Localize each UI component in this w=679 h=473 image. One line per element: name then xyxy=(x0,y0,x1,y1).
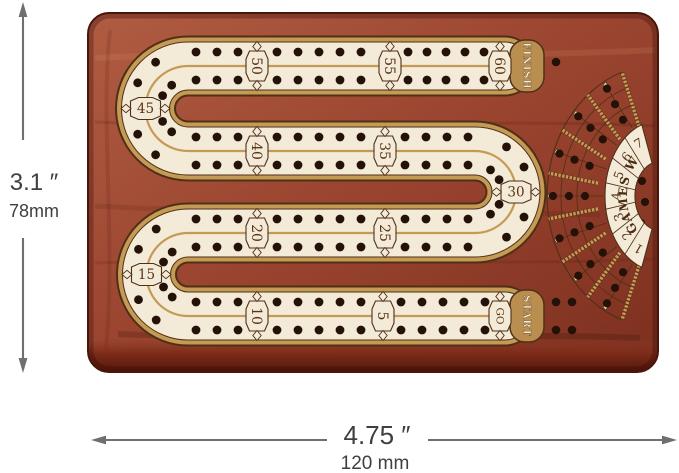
width-mm-label: 120 mm xyxy=(341,453,410,473)
arrow-left-icon xyxy=(91,436,106,445)
badge-number: 5 xyxy=(374,312,390,321)
peg-hole xyxy=(159,283,168,292)
peg-hole xyxy=(273,298,282,307)
peg-hole xyxy=(443,243,452,252)
peg-hole xyxy=(480,48,489,57)
peg-hole xyxy=(336,215,345,224)
peg-hole xyxy=(151,58,160,67)
badge-number: 20 xyxy=(248,224,264,242)
peg-hole xyxy=(167,81,176,90)
peg-hole xyxy=(480,76,489,85)
peg-hole xyxy=(168,293,177,302)
peg-hole xyxy=(159,258,168,267)
peg-hole xyxy=(213,243,222,252)
peg-hole xyxy=(234,161,243,170)
peg-hole xyxy=(418,298,427,307)
peg-hole xyxy=(404,48,413,57)
board: GO51015202530354045505560 1234567GAMES W… xyxy=(0,0,658,372)
peg-hole xyxy=(152,225,161,234)
peg-hole xyxy=(234,133,243,142)
badge-number: 60 xyxy=(491,57,507,75)
peg-hole xyxy=(315,48,324,57)
height-mm-label: 78mm xyxy=(9,201,59,221)
height-inches-label: 3.1 ″ xyxy=(10,169,59,196)
peg-hole xyxy=(315,243,324,252)
peg-hole xyxy=(439,326,448,335)
peg-hole xyxy=(273,326,282,335)
peg-hole xyxy=(574,272,582,280)
badge-number: 30 xyxy=(507,185,524,201)
peg-hole xyxy=(273,215,282,224)
peg-hole xyxy=(481,326,490,335)
peg-hole xyxy=(234,326,243,335)
peg-hole xyxy=(273,243,282,252)
peg-hole xyxy=(213,76,222,85)
peg-hole xyxy=(443,215,452,224)
badge-number: 10 xyxy=(248,307,264,325)
peg-hole xyxy=(552,298,561,307)
peg-hole xyxy=(552,326,561,335)
peg-hole xyxy=(336,76,345,85)
peg-hole xyxy=(294,76,303,85)
peg-hole xyxy=(461,48,470,57)
peg-hole xyxy=(464,243,473,252)
finish-label: FINISH xyxy=(521,42,532,89)
peg-hole xyxy=(234,215,243,224)
peg-hole xyxy=(134,245,143,254)
peg-hole xyxy=(401,215,410,224)
peg-hole xyxy=(423,76,432,85)
peg-hole xyxy=(158,117,167,126)
width-inches-label: 4.75 ″ xyxy=(343,420,410,450)
peg-hole xyxy=(460,298,469,307)
peg-hole xyxy=(234,243,243,252)
peg-hole xyxy=(555,234,563,242)
peg-hole xyxy=(401,243,410,252)
peg-hole xyxy=(611,100,619,108)
peg-hole xyxy=(397,326,406,335)
peg-hole xyxy=(357,76,366,85)
peg-hole xyxy=(151,150,160,159)
peg-hole xyxy=(502,143,511,152)
peg-hole xyxy=(133,130,142,139)
peg-hole xyxy=(294,326,303,335)
peg-hole xyxy=(460,326,469,335)
peg-hole xyxy=(357,161,366,170)
arrow-up-icon xyxy=(19,2,28,17)
badge-number: 45 xyxy=(137,101,154,117)
peg-hole xyxy=(234,76,243,85)
peg-hole xyxy=(357,326,366,335)
peg-hole xyxy=(294,133,303,142)
peg-hole xyxy=(422,133,431,142)
peg-hole xyxy=(192,76,201,85)
peg-hole xyxy=(443,133,452,142)
peg-hole xyxy=(565,192,573,200)
peg-hole xyxy=(422,215,431,224)
peg-hole xyxy=(552,58,561,67)
peg-hole xyxy=(336,298,345,307)
peg-hole xyxy=(315,76,324,85)
peg-hole xyxy=(357,48,366,57)
peg-hole xyxy=(213,298,222,307)
peg-hole xyxy=(397,298,406,307)
peg-hole xyxy=(192,48,201,57)
peg-hole xyxy=(315,161,324,170)
peg-hole xyxy=(234,48,243,57)
peg-hole xyxy=(336,133,345,142)
peg-hole xyxy=(603,299,611,307)
peg-hole xyxy=(401,161,410,170)
peg-hole xyxy=(586,124,594,132)
peg-hole xyxy=(464,161,473,170)
peg-hole xyxy=(439,298,448,307)
peg-hole xyxy=(423,48,432,57)
badge-number: 40 xyxy=(248,142,264,160)
peg-hole xyxy=(495,200,504,209)
peg-hole xyxy=(418,326,427,335)
peg-hole xyxy=(481,298,490,307)
peg-hole xyxy=(294,298,303,307)
peg-hole xyxy=(574,112,582,120)
peg-hole xyxy=(158,91,167,100)
peg-hole xyxy=(464,133,473,142)
badge-number: 15 xyxy=(138,267,155,283)
peg-hole xyxy=(192,298,201,307)
badge-number: GO xyxy=(493,308,505,325)
peg-hole xyxy=(641,198,649,206)
peg-hole xyxy=(570,228,578,236)
peg-hole xyxy=(586,222,594,230)
badge-number: 55 xyxy=(381,57,397,75)
peg-hole xyxy=(586,260,594,268)
peg-hole xyxy=(357,298,366,307)
peg-hole xyxy=(192,243,201,252)
peg-hole xyxy=(192,215,201,224)
peg-hole xyxy=(568,298,577,307)
peg-hole xyxy=(294,215,303,224)
peg-hole xyxy=(422,161,431,170)
peg-hole xyxy=(134,295,143,304)
peg-hole xyxy=(273,161,282,170)
peg-hole xyxy=(603,85,611,93)
peg-hole xyxy=(495,175,504,184)
peg-hole xyxy=(357,243,366,252)
peg-hole xyxy=(570,156,578,164)
peg-hole xyxy=(486,166,495,175)
peg-hole xyxy=(442,76,451,85)
peg-hole xyxy=(404,76,413,85)
product-image[interactable]: GO51015202530354045505560 1234567GAMES W… xyxy=(0,0,679,473)
peg-hole xyxy=(152,316,161,325)
height-dimension: 3.1 ″ 78mm xyxy=(9,2,59,373)
peg-hole xyxy=(315,215,324,224)
peg-hole xyxy=(357,215,366,224)
peg-hole xyxy=(520,213,529,222)
peg-hole xyxy=(213,215,222,224)
peg-hole xyxy=(315,133,324,142)
peg-hole xyxy=(401,133,410,142)
peg-hole xyxy=(213,133,222,142)
peg-hole xyxy=(294,161,303,170)
peg-hole xyxy=(192,133,201,142)
peg-hole xyxy=(133,78,142,87)
peg-hole xyxy=(549,192,557,200)
peg-hole xyxy=(336,161,345,170)
peg-hole xyxy=(294,48,303,57)
peg-hole xyxy=(443,161,452,170)
peg-hole xyxy=(273,133,282,142)
peg-hole xyxy=(336,48,345,57)
peg-hole xyxy=(611,284,619,292)
peg-hole xyxy=(192,326,201,335)
peg-hole xyxy=(213,161,222,170)
badge-number: 35 xyxy=(376,142,392,160)
peg-hole xyxy=(486,210,495,219)
peg-hole xyxy=(464,215,473,224)
width-dimension: 4.75 ″ 120 mm xyxy=(91,420,677,473)
peg-hole xyxy=(294,243,303,252)
peg-hole xyxy=(315,326,324,335)
peg-hole xyxy=(520,163,529,172)
peg-hole xyxy=(273,48,282,57)
peg-hole xyxy=(167,127,176,136)
peg-hole xyxy=(168,248,177,257)
peg-hole xyxy=(336,243,345,252)
arrow-down-icon xyxy=(19,358,28,373)
peg-hole xyxy=(357,133,366,142)
peg-hole xyxy=(581,192,589,200)
peg-hole xyxy=(234,298,243,307)
arrow-right-icon xyxy=(662,436,677,445)
peg-hole xyxy=(213,326,222,335)
peg-hole xyxy=(461,76,470,85)
peg-hole xyxy=(422,243,431,252)
peg-hole xyxy=(599,249,607,257)
peg-hole xyxy=(568,326,577,335)
peg-hole xyxy=(315,298,324,307)
peg-hole xyxy=(619,268,627,276)
badge-number: 25 xyxy=(376,224,392,242)
peg-hole xyxy=(619,116,627,124)
peg-hole xyxy=(336,326,345,335)
peg-hole xyxy=(555,150,563,158)
peg-hole xyxy=(213,48,222,57)
peg-hole xyxy=(599,135,607,143)
cribbage-board-graphic: GO51015202530354045505560 1234567GAMES W… xyxy=(0,0,679,473)
peg-hole xyxy=(586,162,594,170)
start-label: START xyxy=(521,295,532,336)
peg-hole xyxy=(442,48,451,57)
peg-hole xyxy=(192,161,201,170)
peg-hole xyxy=(502,233,511,242)
peg-hole xyxy=(273,76,282,85)
badge-number: 50 xyxy=(248,57,264,75)
